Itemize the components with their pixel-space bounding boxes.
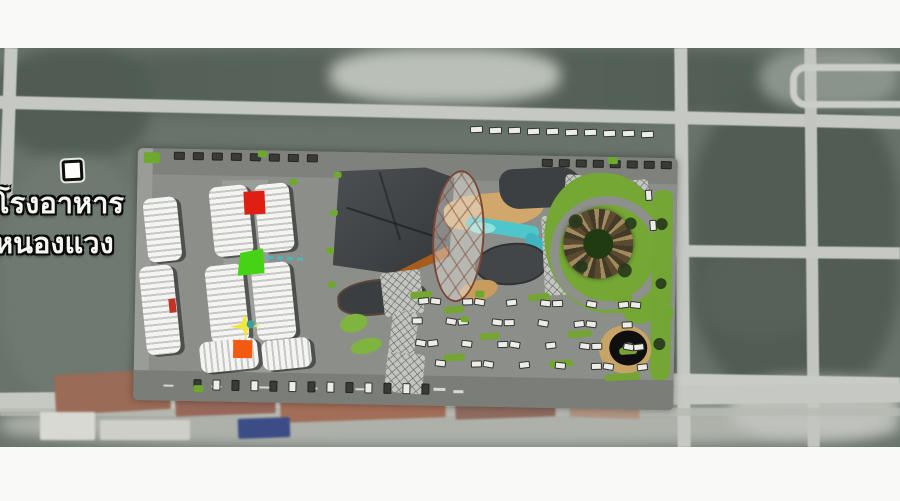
parked-car-icon <box>585 320 597 328</box>
parked-car-icon <box>250 380 258 391</box>
parked-car-icon <box>645 190 653 201</box>
parked-car-icon <box>288 154 299 162</box>
parked-car-icon <box>602 362 614 371</box>
street-truck-icon <box>641 130 654 138</box>
road-left-vertical <box>0 48 18 198</box>
shrub-icon <box>289 179 297 185</box>
parked-car-icon <box>383 383 391 394</box>
parked-car-icon <box>622 321 633 328</box>
shrub-icon <box>666 308 673 318</box>
parked-car-icon <box>573 320 585 328</box>
parked-car-icon <box>537 319 549 328</box>
parked-car-icon <box>474 298 486 307</box>
parked-car-icon <box>461 340 473 348</box>
road-right-horizontal-1 <box>655 245 900 260</box>
parked-car-icon <box>364 382 372 393</box>
parked-car-icon <box>586 300 598 309</box>
parked-car-icon <box>579 342 591 350</box>
letterbox-bottom <box>0 447 900 501</box>
parked-car-icon <box>649 220 657 231</box>
video-frame: โรงอาหาร หนองแวง <box>0 0 900 501</box>
parked-car-icon <box>559 159 570 167</box>
parked-car-icon <box>644 161 655 169</box>
street-truck-icon <box>584 129 597 137</box>
parked-car-icon <box>345 382 353 393</box>
parked-car-icon <box>555 361 567 369</box>
poi-label-line2: หนองแวง <box>0 223 124 263</box>
parked-car-icon <box>491 318 503 326</box>
parked-car-icon <box>412 317 423 324</box>
site-plan-overlay <box>133 148 678 410</box>
shrub-icon <box>330 210 338 216</box>
parked-car-icon <box>661 161 672 169</box>
parking-island <box>567 330 591 339</box>
parked-car-icon <box>545 341 557 349</box>
street-truck-icon <box>622 130 635 138</box>
parked-car-icon <box>307 381 315 392</box>
parked-car-icon <box>519 361 531 369</box>
parked-car-icon <box>212 152 223 160</box>
street-truck-icon <box>603 129 616 137</box>
road-loop-top-right <box>790 64 900 108</box>
parking-island <box>479 332 499 340</box>
parked-car-icon <box>421 383 429 394</box>
letterbox-top <box>0 0 900 48</box>
parked-car-icon <box>471 360 482 367</box>
teal-path-line <box>267 256 303 261</box>
parked-car-icon <box>269 381 277 392</box>
parked-car-icon <box>415 339 427 348</box>
parked-car-icon <box>435 359 447 367</box>
parked-car-icon <box>506 299 518 307</box>
market-row-h2 <box>261 336 313 371</box>
vegetation-right <box>690 88 900 398</box>
tree-ring-center <box>583 229 614 260</box>
satellite-map[interactable] <box>0 48 900 447</box>
parked-car-icon <box>497 341 508 348</box>
marker-red-square <box>243 191 265 215</box>
shrub-icon <box>333 172 341 178</box>
red-accent-strip <box>168 298 176 313</box>
parked-car-icon <box>591 363 602 370</box>
market-row-left-1 <box>142 196 182 263</box>
parked-car-icon <box>542 159 553 167</box>
shrub-icon <box>608 157 618 164</box>
marker-orange-square <box>233 340 252 358</box>
parked-car-icon <box>445 317 457 326</box>
street-truck-icon <box>508 127 521 135</box>
shrub-icon <box>475 291 484 298</box>
parked-car-icon <box>576 159 587 167</box>
poi-label-line1: โรงอาหาร <box>0 183 124 223</box>
building-blue-roof <box>238 417 291 439</box>
poi-marker-icon[interactable] <box>61 159 83 181</box>
street-truck-icon <box>565 128 578 136</box>
parking-lot <box>409 291 641 380</box>
shrub-icon <box>327 282 335 288</box>
parked-car-icon <box>504 319 515 326</box>
parked-car-icon <box>633 343 645 351</box>
building-white-2 <box>100 420 190 440</box>
parked-car-icon <box>637 363 649 371</box>
parked-car-icon <box>427 339 439 347</box>
parked-car-icon <box>618 301 630 309</box>
shrub-icon <box>326 248 334 254</box>
shrub-icon <box>258 150 267 157</box>
parked-car-icon <box>552 300 563 307</box>
parked-car-icon <box>402 383 410 394</box>
parked-car-icon <box>231 380 239 391</box>
parked-car-icon <box>509 340 521 349</box>
parked-car-icon <box>231 153 242 161</box>
parked-car-icon <box>462 298 473 305</box>
parked-car-icon <box>212 379 220 390</box>
clearing-top-center <box>330 48 560 103</box>
parked-car-icon <box>288 381 296 392</box>
road-dash <box>453 390 463 393</box>
road-dash <box>163 385 173 387</box>
parked-car-icon <box>307 154 318 162</box>
street-truck-icon <box>470 126 483 134</box>
vegetation-right-mid <box>700 248 820 338</box>
street-truck-icon <box>546 128 559 136</box>
parked-car-icon <box>269 154 280 162</box>
parked-car-icon <box>193 152 204 160</box>
parked-car-icon <box>482 360 494 369</box>
parked-car-icon <box>593 160 604 168</box>
road-dash <box>433 388 445 391</box>
shrub-icon <box>144 152 160 163</box>
parked-car-icon <box>418 297 430 305</box>
parking-island <box>604 372 640 381</box>
parked-car-icon <box>174 152 185 160</box>
parked-car-icon <box>430 297 442 305</box>
shrub-icon <box>193 385 203 392</box>
lawn-patch-2 <box>349 335 384 357</box>
parked-car-icon <box>591 343 602 350</box>
parked-car-icon <box>630 301 642 309</box>
parking-island <box>444 305 464 313</box>
street-truck-icon <box>527 127 540 135</box>
poi-label: โรงอาหาร หนองแวง <box>0 183 124 263</box>
road-dash <box>259 386 269 388</box>
parked-car-icon <box>627 160 638 168</box>
building-white-1 <box>40 412 95 440</box>
street-truck-icon <box>489 126 502 134</box>
shrub-icon <box>461 316 469 322</box>
roof-ridge-2 <box>379 172 402 241</box>
parked-car-icon <box>326 382 334 393</box>
parked-car-icon <box>540 299 552 307</box>
